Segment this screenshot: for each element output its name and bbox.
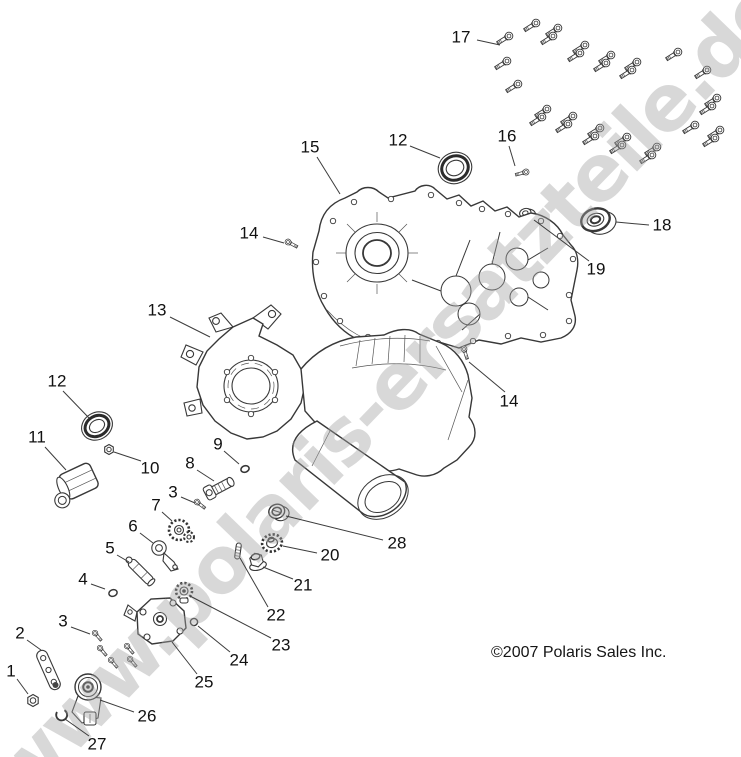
part-crankcase-half-15 [313, 185, 578, 350]
part-oil-seal-12-upper [433, 147, 477, 189]
part-oil-seal-12-lower [76, 406, 117, 445]
part-nut-1 [28, 695, 38, 707]
bolt-set-17 [494, 18, 726, 166]
part-sprocket-23 [176, 583, 192, 603]
part-oil-pump-26 [72, 674, 101, 725]
part-oring-9 [240, 465, 250, 474]
part-shaft-5 [124, 555, 156, 587]
part-bracket-2 [35, 649, 62, 692]
part-bolt-16 [515, 168, 530, 177]
part-gear-7 [169, 520, 194, 542]
parts-diagram-page: www.polaris-ersatzteile.de 1716121514181… [0, 0, 741, 757]
part-shift-arm-6 [152, 541, 178, 571]
part-plug-28 [267, 501, 291, 524]
part-washer-24 [190, 618, 197, 625]
part-washer-4 [108, 588, 118, 597]
part-nut-10 [105, 445, 114, 455]
part-bolt-set-3-lower [91, 629, 138, 669]
part-bearing-18 [578, 203, 619, 239]
part-clip-27 [56, 710, 67, 720]
part-bolt-14-left [284, 238, 299, 250]
part-bevel-gear-20 [260, 532, 284, 554]
part-pin-22 [234, 543, 241, 560]
part-bolt-3-upper [193, 498, 207, 510]
part-fitting-8 [202, 474, 236, 501]
copyright-notice: ©2007 Polaris Sales Inc. [491, 644, 666, 662]
part-plug-11 [45, 462, 101, 511]
part-pump-cover-25 [124, 598, 186, 644]
part-bolt-14-right [460, 345, 470, 360]
part-crankcase-half-13 [181, 305, 475, 528]
part-nut-21 [246, 551, 267, 572]
